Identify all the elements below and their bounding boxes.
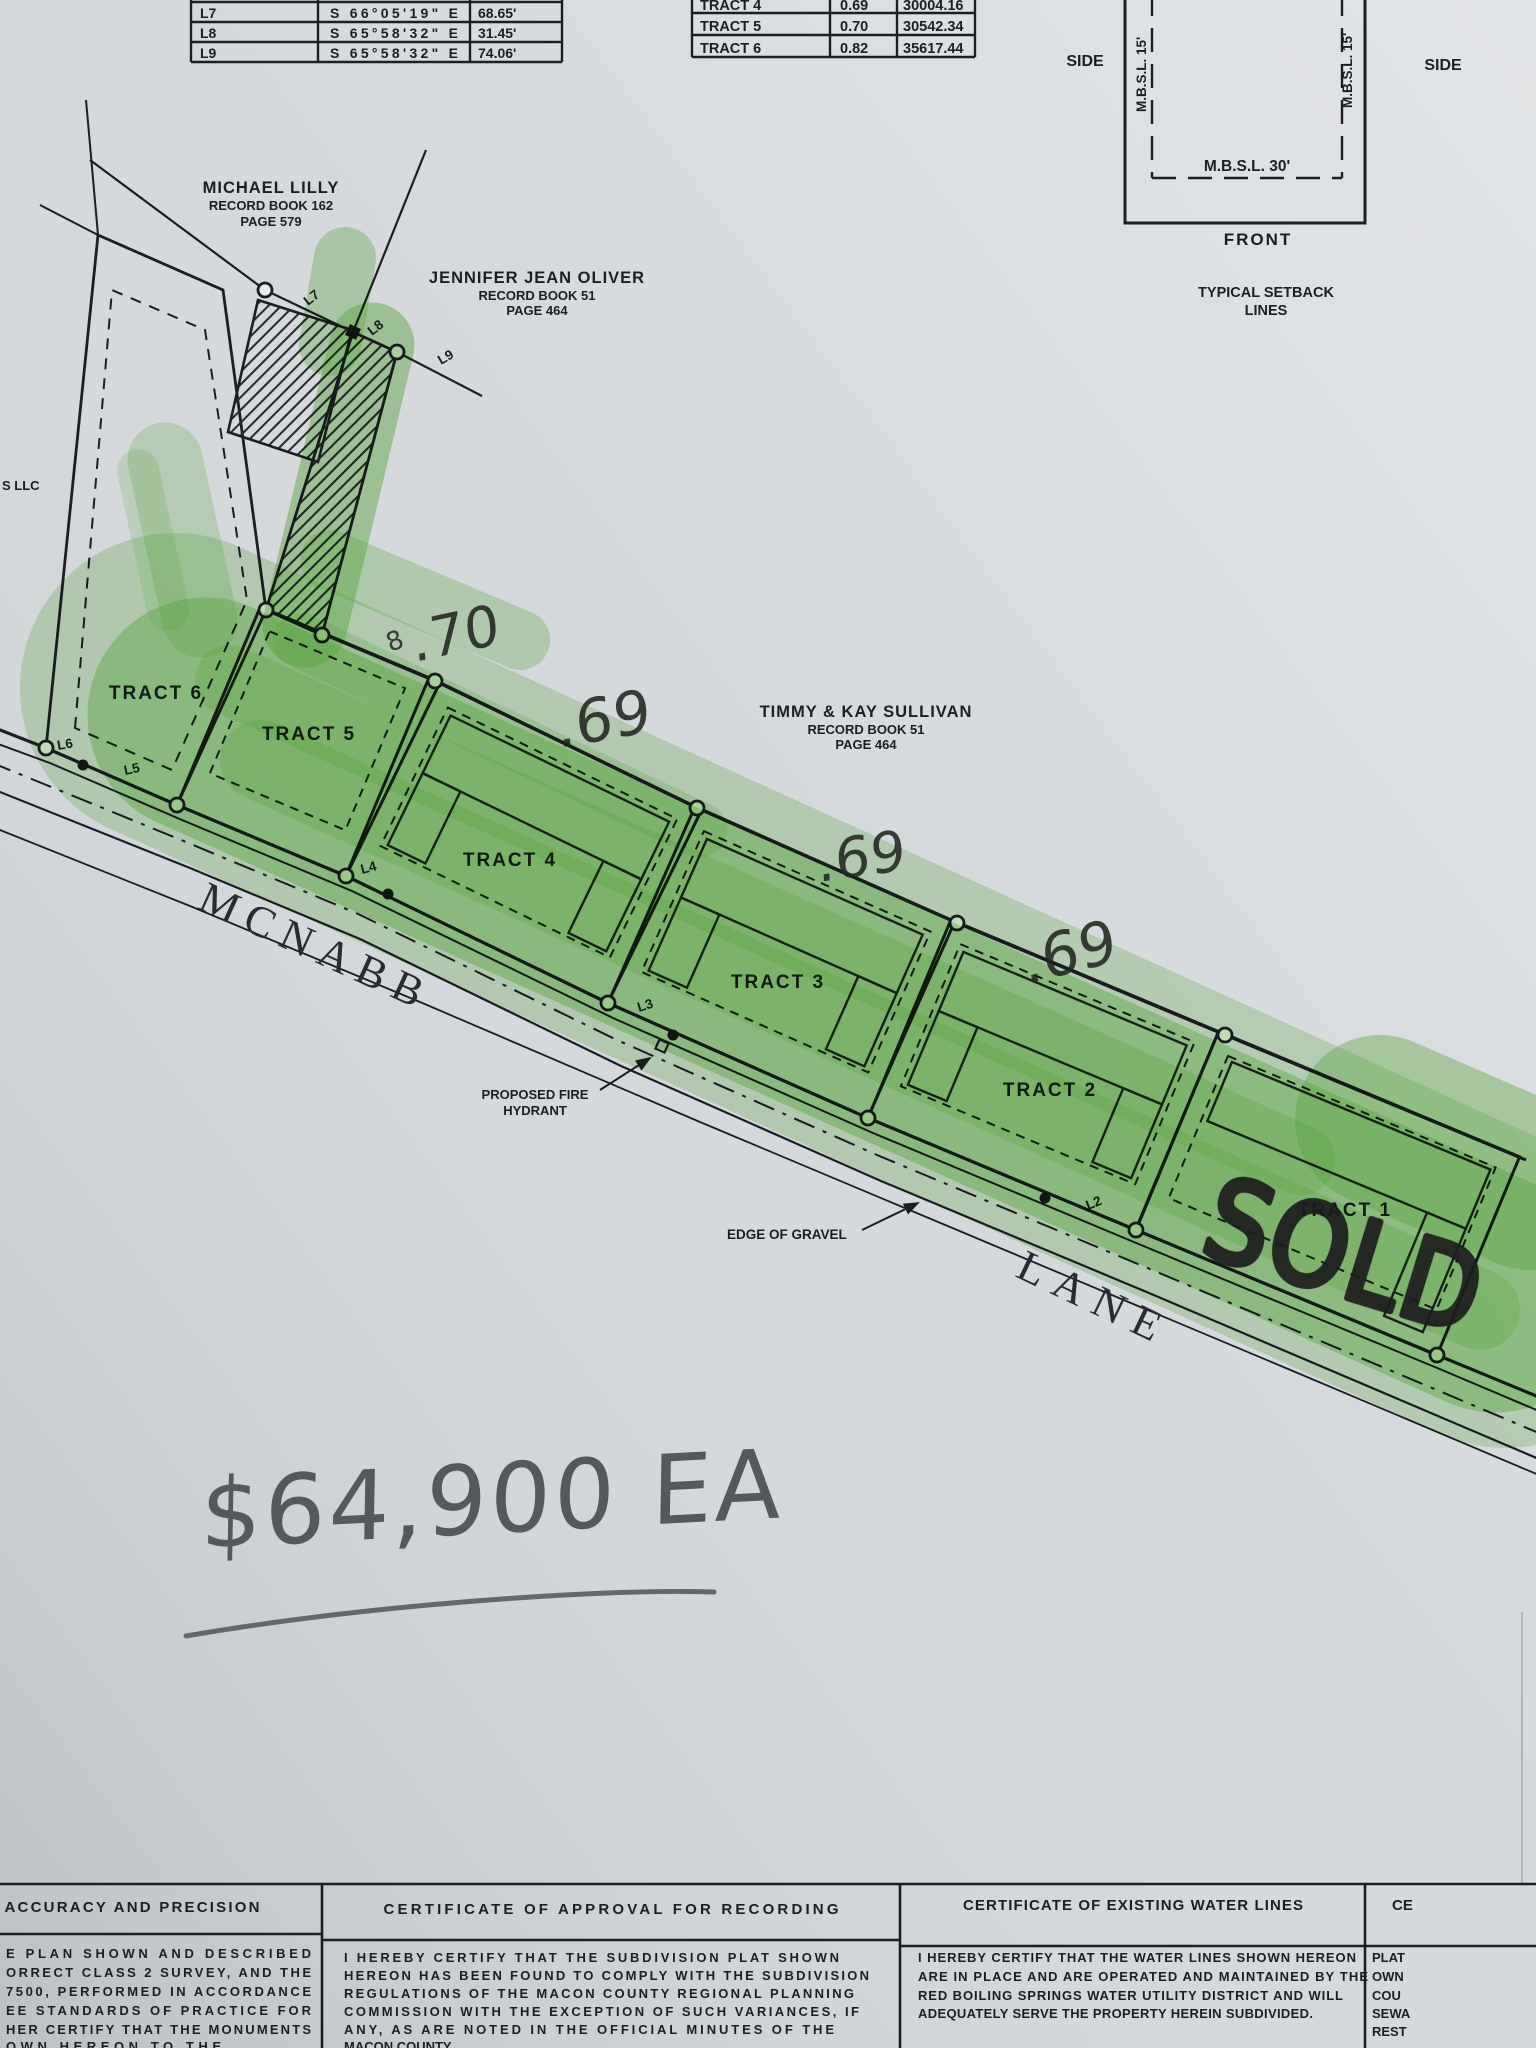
cut-off-owner-fragment: S LLC xyxy=(2,478,40,493)
line-distance: 68.65' xyxy=(478,5,516,21)
edge-of-gravel-label: EDGE OF GRAVEL xyxy=(727,1227,847,1242)
certificate-line: OWN xyxy=(1372,1969,1404,1984)
certificate-title-fragment: CE xyxy=(1392,1897,1413,1914)
tract-name: TRACT 5 xyxy=(700,19,761,35)
owner-page: PAGE 464 xyxy=(506,303,568,318)
owner-book: RECORD BOOK 51 xyxy=(807,722,924,737)
certificate-line: I HEREBY CERTIFY THAT THE WATER LINES SH… xyxy=(918,1950,1356,1965)
certificate-line: PLAT xyxy=(1372,1950,1405,1965)
owner-name: TIMMY & KAY SULLIVAN xyxy=(760,703,973,721)
tract-acres: 0.82 xyxy=(840,41,868,57)
certificate-line: RED BOILING SPRINGS WATER UTILITY DISTRI… xyxy=(918,1988,1343,2003)
tract-sqft: 30542.34 xyxy=(903,19,963,35)
fire-hydrant-label: PROPOSED FIRE xyxy=(482,1087,589,1102)
certificate-line: MACON COUNTY xyxy=(344,2039,452,2048)
tract-name: TRACT 4 xyxy=(700,0,761,14)
owner-book: RECORD BOOK 51 xyxy=(478,288,595,303)
tract-name: TRACT 6 xyxy=(700,41,761,57)
mbsl-front: M.B.S.L. 30' xyxy=(1204,158,1290,175)
certificate-line: ADEQUATELY SERVE THE PROPERTY HEREIN SUB… xyxy=(918,2006,1313,2021)
owner-page: PAGE 464 xyxy=(835,737,897,752)
tract-acres: 0.69 xyxy=(840,0,868,14)
plat-photo-page: L7 S 66°05'19" E 68.65' L8 S 65°58'32" E… xyxy=(0,0,1536,2048)
owner-page: PAGE 579 xyxy=(240,214,301,229)
owner-name: MICHAEL LILLY xyxy=(203,179,340,197)
mbsl-side-right: M.B.S.L. 15' xyxy=(1340,33,1355,108)
certificate-line: HER CERTIFY THAT THE MONUMENTS xyxy=(6,2022,311,2037)
certificate-line: EE STANDARDS OF PRACTICE FOR xyxy=(6,2003,312,2018)
setback-caption: LINES xyxy=(1245,303,1288,319)
fire-hydrant-label: HYDRANT xyxy=(503,1103,567,1118)
side-label-right: SIDE xyxy=(1424,57,1462,74)
certificate-line: HEREON HAS BEEN FOUND TO COMPLY WITH THE… xyxy=(344,1968,869,1983)
acreage-mark-tract3: .69 xyxy=(816,818,906,896)
line-id: L9 xyxy=(200,45,217,61)
certificate-line: SEWA xyxy=(1372,2006,1411,2021)
certificate-line: REST xyxy=(1372,2024,1407,2039)
tract-acres: 0.70 xyxy=(840,19,868,35)
certificate-title: ACCURACY AND PRECISION xyxy=(5,1899,260,1916)
setback-caption: TYPICAL SETBACK xyxy=(1198,285,1334,301)
certificate-line: COU xyxy=(1372,1988,1401,2003)
tract-sqft: 35617.44 xyxy=(903,41,963,57)
line-distance: 31.45' xyxy=(478,25,516,41)
certificate-line: I HEREBY CERTIFY THAT THE SUBDIVISION PL… xyxy=(344,1950,839,1965)
front-label: FRONT xyxy=(1224,230,1293,249)
line-id: L7 xyxy=(200,5,217,21)
tract-sqft: 30004.16 xyxy=(903,0,963,14)
line-id: L8 xyxy=(200,25,217,41)
side-label-left: SIDE xyxy=(1066,53,1104,70)
certificate-line: OWN HEREON TO THE xyxy=(6,2039,221,2048)
owner-name: JENNIFER JEAN OLIVER xyxy=(429,269,645,287)
certificate-line: 7500, PERFORMED IN ACCORDANCE xyxy=(6,1984,311,1999)
plat-map-photo: L7 S 66°05'19" E 68.65' L8 S 65°58'32" E… xyxy=(0,0,1536,2048)
certificate-line: ARE IN PLACE AND ARE OPERATED AND MAINTA… xyxy=(918,1969,1368,1984)
mbsl-side-left: M.B.S.L. 15' xyxy=(1134,37,1149,112)
line-distance: 74.06' xyxy=(478,45,516,61)
owner-book: RECORD BOOK 162 xyxy=(209,198,333,213)
